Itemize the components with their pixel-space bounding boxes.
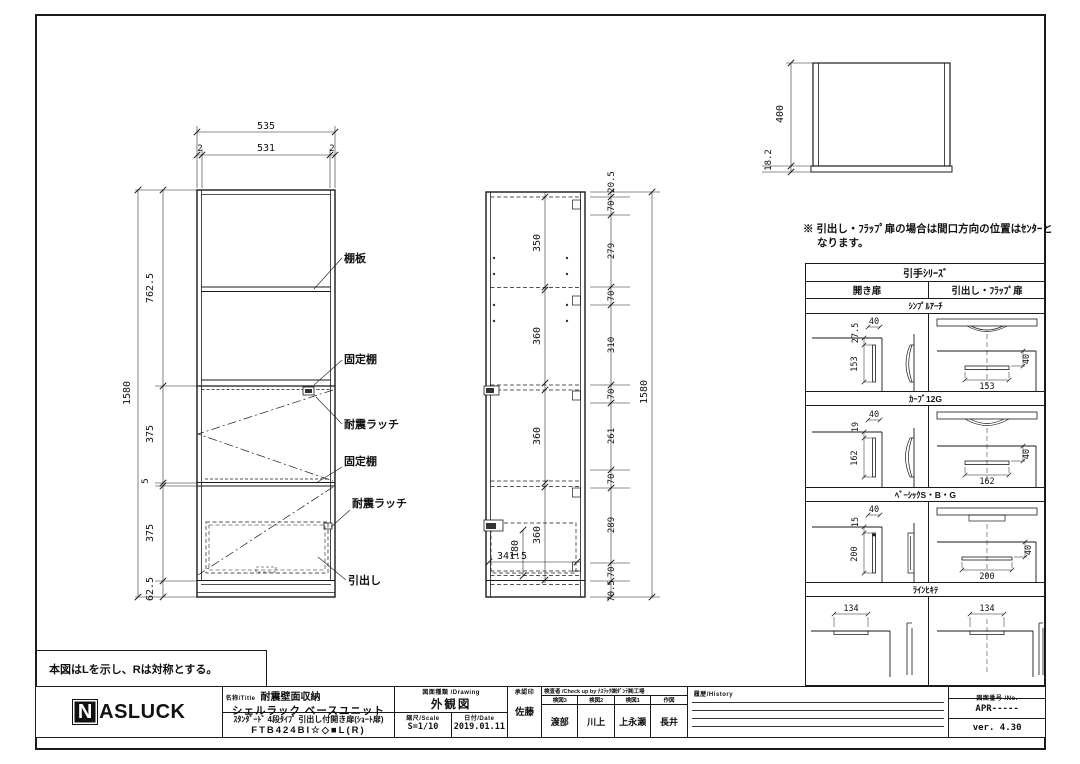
dim-drawer-depth: 341.5 (497, 551, 527, 562)
number-cell: 図面番号 /No. APR----- ver. 4.30 (949, 687, 1045, 737)
approval-cell: 承認印 佐藤 (508, 687, 542, 737)
chain-4: 310 (607, 337, 617, 353)
dim-upper-height: 762.5 (145, 273, 156, 303)
dim-handle-offset: 15 (851, 517, 861, 527)
label-shelf: 棚板 (344, 251, 367, 265)
handle-note: ※ 引出し・ﾌﾗｯﾌﾟ扉の場合は間口方向の位置はｾﾝﾀｰと なります。 (803, 222, 1053, 250)
chain-0: 20.5 (607, 171, 617, 193)
chain-10: 70.5 (607, 580, 617, 602)
dim-handle-drop: 40 (1022, 354, 1032, 364)
dim-inner-2: 360 (532, 327, 543, 345)
dim-handle-length: 153 (850, 356, 860, 371)
dim-groove-length: 134 (843, 604, 858, 614)
checker-name: 上永瀬 (615, 705, 650, 737)
dim-handle-length-front: 153 (979, 382, 994, 392)
section-simple-arch-name: ｼﾝﾌﾟﾙｱｰﾁ (806, 299, 1045, 314)
dim-gap: 5 (141, 478, 151, 483)
dim-handle-width: 40 (869, 317, 879, 327)
dim-handle-length: 162 (850, 450, 860, 465)
drafter-label: 作図 (651, 696, 686, 705)
history-cell: 履歴/History (688, 687, 949, 737)
chain-2: 279 (607, 243, 617, 259)
checker-name: 渡部 (542, 705, 577, 737)
drafter-name: 長井 (651, 705, 686, 737)
scale-value: S=1/10 (395, 722, 450, 732)
chain-1: 70 (607, 201, 617, 212)
simple-arch-hinged-drawing: 40 27.5 153 (806, 314, 928, 392)
section-line-name: ﾗｲﾝﾋｷﾃ (806, 583, 1045, 597)
cad-drawing-page: { "front_view": { "top_dims": ["535", "2… (0, 0, 1080, 764)
drawing-type-cell: 図面種類 /Drawing 外観図 縮尺/Scale S=1/10 日付/Dat… (395, 687, 508, 737)
history-label: 履歴/History (694, 689, 733, 698)
chain-8: 289 (607, 517, 617, 533)
chain-9: 70 (607, 567, 617, 578)
dim-depth: 400 (775, 105, 786, 123)
label-latch-2: 耐震ラッチ (352, 496, 407, 510)
dim-handle-width: 40 (869, 410, 879, 420)
dim-handle-drop: 40 (1022, 449, 1032, 459)
chain-5: 70 (607, 389, 617, 400)
side-view-chain-labels: 20.5 70 279 70 310 70 261 70 289 70 70.5… (607, 171, 650, 602)
dim-handle-offset: 19 (851, 422, 861, 432)
label-fixed-shelf-2: 固定棚 (344, 454, 377, 468)
section-basic: 40 15 200 200 40 (806, 502, 1045, 583)
section-curve12g: 40 19 162 162 40 (806, 406, 1045, 488)
section-basic-name: ﾍﾞｰｼｯｸS・B・G (806, 488, 1045, 502)
col-drawer-flap-door: 引出し・ﾌﾗｯﾌﾟ扉 (929, 282, 1045, 298)
dim-side-total: 1580 (639, 380, 650, 404)
nasluck-logo-n: N (72, 699, 98, 725)
dim-base-panel: 18.2 (764, 149, 774, 171)
name-label: 名称/Title (226, 693, 256, 702)
date-value: 2019.01.11 (452, 722, 507, 732)
dim-door1-height: 375 (145, 425, 156, 443)
front-view-dim-labels: 535 2 531 2 1580 762.5 375 5 375 62.5 (122, 121, 335, 601)
drawing-type: 外観図 (395, 696, 507, 712)
approval-label: 承認印 (508, 687, 541, 696)
dim-overall-width: 535 (257, 121, 275, 132)
label-fixed-shelf-1: 固定棚 (344, 352, 377, 366)
side-view-internal-dim-labels: 350 360 360 360 180 341.5 (497, 234, 543, 562)
history-rule (692, 710, 944, 711)
line-hinged-drawing: 134 (806, 597, 928, 685)
checker-label: 検図3 (542, 696, 577, 705)
approver-name: 佐藤 (508, 704, 541, 718)
dim-handle-width: 40 (869, 505, 879, 515)
dim-handle-length: 200 (850, 546, 860, 561)
nasluck-logo-text: ASLUCK (99, 701, 185, 724)
dim-edge-left: 2 (197, 144, 202, 154)
date-label: 日付/Date (452, 713, 507, 722)
checker-col-1: 検図1 上永瀬 (615, 696, 651, 737)
dim-base-height: 62.5 (145, 577, 156, 601)
handle-note-line2: なります。 (803, 236, 1053, 250)
checker-col-3: 検図3 渡部 (542, 696, 578, 737)
dim-handle-offset: 27.5 (851, 323, 861, 343)
dim-door2-height: 375 (145, 524, 156, 542)
front-view (197, 190, 335, 597)
drawing-number: APR----- (949, 699, 1045, 719)
checker-name: 川上 (578, 705, 613, 737)
dim-inner-width: 531 (257, 143, 275, 154)
product-category: 耐震壁面収納 (261, 688, 321, 703)
dim-handle-length-front: 162 (979, 477, 994, 487)
label-drawer: 引出し (348, 573, 381, 587)
drawing-version: ver. 4.30 (949, 719, 1045, 737)
dim-inner-3: 360 (532, 427, 543, 445)
mirror-note-text: 本図はLを示し、Rは対称とする。 (49, 664, 217, 676)
section-line: 134 134 (806, 597, 1045, 685)
section-curve12g-name: ｶｰﾌﾞ12G (806, 392, 1045, 406)
checker-col-2: 検図2 川上 (578, 696, 614, 737)
front-view-dimensions (135, 126, 338, 600)
section-simple-arch: 40 27.5 153 153 40 (806, 314, 1045, 392)
dim-inner-1: 350 (532, 234, 543, 252)
line-flap-drawing: 134 (929, 597, 1045, 685)
history-rule (692, 726, 944, 727)
dim-handle-drop: 40 (1024, 545, 1034, 555)
check-cell: 検査者 /Check up by ﾅｽﾗｯｸ㈱ﾀﾞﾝﾃ㈱工場 検図3 渡部 検図… (542, 687, 688, 737)
history-rule (692, 702, 944, 703)
logo-cell: N ASLUCK (36, 687, 223, 737)
check-header: 検査者 /Check up by ﾅｽﾗｯｸ㈱ﾀﾞﾝﾃ㈱工場 (542, 687, 687, 696)
checker-label: 検図2 (578, 696, 613, 705)
top-view-dim-labels: 400 18.2 (764, 105, 786, 171)
col-hinged-door: 開き扉 (806, 282, 929, 298)
mirror-note-cell: 本図はLを示し、Rは対称とする。 (35, 650, 267, 686)
top-view (811, 63, 952, 172)
basic-flap-drawing: 200 40 (929, 502, 1045, 583)
curve12g-hinged-drawing: 40 19 162 (806, 406, 928, 488)
product-spec: ｽﾀﾝﾀﾞｰﾄﾞ 4段ﾀｲﾌﾟ 引出し付開き扉(ｼｮｰﾄ扉) (223, 714, 395, 725)
scale-label: 縮尺/Scale (395, 713, 450, 722)
chain-7: 70 (607, 474, 617, 485)
checker-label: 検図1 (615, 696, 650, 705)
title-cell: 名称/Title 耐震壁面収納 シェルラック ベースユニット ｽﾀﾝﾀﾞｰﾄﾞ … (223, 687, 396, 737)
curve12g-flap-drawing: 162 40 (929, 406, 1045, 488)
history-rule (692, 718, 944, 719)
handle-table-title: 引手ｼﾘｰｽﾞ (806, 264, 1045, 282)
chain-3: 70 (607, 291, 617, 302)
handle-note-line1: ※ 引出し・ﾌﾗｯﾌﾟ扉の場合は間口方向の位置はｾﾝﾀｰと (803, 223, 1053, 235)
chain-6: 261 (607, 428, 617, 444)
dim-total-height: 1580 (122, 381, 133, 405)
dim-handle-length-front: 200 (979, 572, 994, 582)
model-number: FTB424BI☆◇■L(R) (223, 725, 395, 736)
simple-arch-flap-drawing: 153 40 (929, 314, 1045, 392)
drafter-col: 作図 長井 (651, 696, 686, 737)
dim-groove-length-front: 134 (979, 604, 994, 614)
dim-inner-4: 360 (532, 526, 543, 544)
dim-edge-right: 2 (329, 144, 334, 154)
drawing-label: 図面種類 /Drawing (395, 687, 507, 696)
handle-series-table: 引手ｼﾘｰｽﾞ 開き扉 引出し・ﾌﾗｯﾌﾟ扉 ｼﾝﾌﾟﾙｱｰﾁ 40 27.5 … (805, 263, 1046, 686)
title-block: N ASLUCK 名称/Title 耐震壁面収納 シェルラック ベースユニット … (35, 686, 1046, 738)
label-latch-1: 耐震ラッチ (344, 417, 399, 431)
basic-hinged-drawing: 40 15 200 (806, 502, 928, 583)
